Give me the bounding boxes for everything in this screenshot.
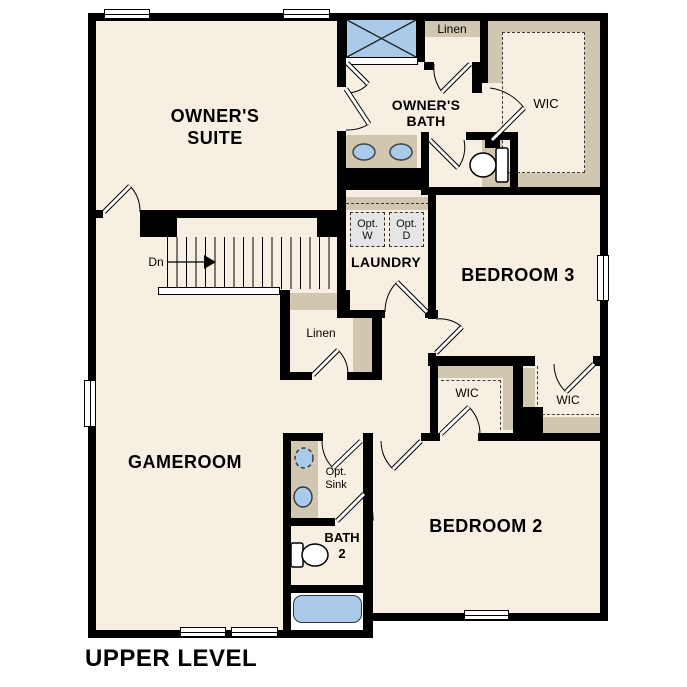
wall-hall-b: [478, 433, 608, 441]
owners-bath-vanity: [345, 135, 417, 168]
wall-bath2-mid: [283, 518, 335, 526]
wic-bedroom2-shelf-right: [503, 366, 513, 430]
optional-washer: Opt. W: [350, 212, 385, 247]
opt-washer-label: Opt.: [357, 218, 378, 230]
wall-hall-a: [421, 433, 440, 441]
window: [464, 610, 509, 620]
window: [231, 627, 278, 637]
window: [84, 380, 96, 427]
wall-wic-bedroom2-left: [430, 356, 438, 441]
bedroom2-label: BEDROOM 2: [429, 515, 543, 537]
wall-toilet-top: [466, 132, 518, 140]
window: [104, 9, 150, 19]
wall-stair-block-left: [140, 210, 177, 237]
wic-bedroom2-label: WIC: [455, 386, 478, 400]
owners-bath-label: OWNER'SBATH: [392, 97, 460, 129]
wall-shower-right: [417, 13, 425, 62]
floor-plan: Opt. W Opt. D: [0, 0, 687, 687]
window: [283, 9, 330, 19]
wall-segment: [88, 210, 103, 218]
wall-bath-left-lower: [337, 131, 346, 168]
wall-bath2-left: [283, 433, 291, 638]
opt-dryer-label: Opt.: [396, 218, 417, 230]
opt-washer-label2: W: [362, 230, 372, 242]
staircase: [167, 237, 337, 289]
laundry-label: LAUNDRY: [351, 254, 421, 270]
wic-owners-label: WIC: [533, 96, 558, 112]
wic-bedroom3-dash: [537, 366, 599, 415]
wall-wic-divider: [513, 356, 523, 410]
wall-vanity-band: [337, 168, 421, 190]
window: [597, 255, 609, 301]
bath2-vanity: [291, 438, 318, 518]
wall-linen-hall-left: [280, 290, 290, 378]
optional-dryer: Opt. D: [389, 212, 424, 247]
bath2-label: BATH2: [324, 530, 359, 562]
opt-dryer-label2: D: [403, 230, 411, 242]
linen-hall-shelf-right: [353, 312, 372, 373]
linen-hall-label: Linen: [306, 326, 335, 340]
wall-bath2-top: [283, 433, 323, 441]
shower: [345, 18, 418, 59]
wall-bath2-tub: [283, 585, 373, 593]
wic-bedroom3-label: WIC: [556, 393, 579, 407]
wall-wic-row-top-b: [593, 356, 608, 366]
owners-suite-label: OWNER'SSUITE: [171, 105, 260, 149]
wic-bedroom3-shelf-bottom: [543, 417, 600, 433]
wall-toilet-left: [421, 132, 429, 195]
window: [180, 627, 226, 637]
wall-linen-hall-bottom-b: [347, 372, 382, 380]
opt-sink-label: Opt.Sink: [325, 466, 346, 492]
outside-area: [373, 621, 687, 687]
wic-bedroom3-shelf-left: [523, 368, 535, 410]
wall-left: [88, 13, 96, 638]
bedroom3-label: BEDROOM 3: [461, 264, 575, 286]
wall-wic-owners-left: [480, 13, 488, 83]
wall-linen-top-bottom: [424, 62, 434, 70]
linen-hall-shelf-top: [290, 293, 338, 310]
wall-bath2-right: [363, 433, 373, 630]
wall-linen-hall-right: [372, 312, 382, 378]
bathtub: [293, 595, 362, 623]
wall-linen-hall-bottom-a: [280, 372, 312, 380]
page-title: UPPER LEVEL: [85, 645, 257, 673]
laundry-shelf-dash: [346, 203, 429, 204]
wall-right: [600, 13, 608, 621]
stairs-down-label: Dn: [148, 255, 163, 269]
gameroom-label: GAMEROOM: [128, 451, 242, 473]
shower-door-track: [345, 57, 418, 65]
wall-linen-hall-topright: [338, 290, 350, 312]
wall-bedroom3-top: [421, 187, 608, 195]
wic-bedroom2-shelf-top: [438, 366, 513, 378]
linen-top-label: Linen: [437, 22, 466, 36]
wall-bedroom3-left-a: [428, 190, 436, 319]
stair-railing: [158, 287, 280, 295]
